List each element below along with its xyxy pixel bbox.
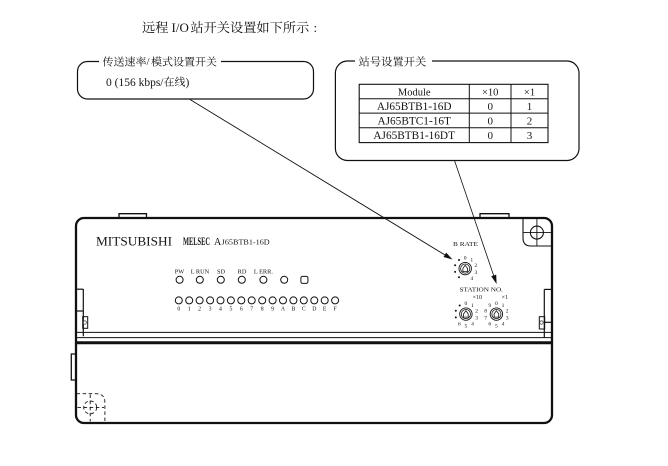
svg-text:RD: RD (238, 269, 247, 276)
svg-text:5: 5 (229, 307, 232, 313)
svg-text:0: 0 (465, 301, 468, 307)
svg-text:I/O: I/O (172, 20, 189, 35)
svg-text:×1: ×1 (502, 295, 508, 301)
svg-text:0: 0 (487, 101, 493, 113)
svg-text:SD: SD (217, 269, 226, 276)
svg-text:MELSEC: MELSEC (183, 236, 210, 248)
svg-text:8: 8 (484, 309, 487, 315)
svg-text:1: 1 (470, 258, 473, 264)
svg-text:4: 4 (502, 321, 505, 327)
svg-text:L ERR.: L ERR. (254, 269, 273, 276)
svg-text:MITSUBISHI: MITSUBISHI (96, 234, 172, 249)
svg-text:3: 3 (209, 307, 212, 313)
svg-text:3: 3 (475, 270, 478, 276)
svg-text:7: 7 (250, 307, 253, 313)
svg-text:STATION NO.: STATION NO. (460, 287, 504, 294)
svg-text:2: 2 (527, 116, 533, 128)
svg-text:6: 6 (240, 307, 243, 313)
svg-text:4: 4 (219, 307, 222, 313)
svg-text:Module: Module (398, 88, 431, 99)
svg-text:0 (156 kbps/: 0 (156 kbps/ (106, 77, 164, 89)
svg-text:1: 1 (502, 303, 505, 309)
svg-text:2: 2 (475, 263, 478, 269)
svg-text:0: 0 (464, 255, 467, 261)
svg-text:×1: ×1 (524, 88, 535, 99)
svg-text:J65BTB1-16D: J65BTB1-16D (222, 238, 270, 246)
svg-text:D: D (312, 307, 316, 313)
svg-text:B: B (291, 307, 295, 313)
svg-text:AJ65BTB1-16D: AJ65BTB1-16D (377, 101, 452, 113)
svg-text:3: 3 (527, 130, 533, 142)
svg-text:2: 2 (506, 309, 509, 315)
svg-text:3: 3 (506, 316, 509, 322)
svg-text:E: E (323, 307, 327, 313)
svg-text:6: 6 (458, 321, 461, 327)
svg-text:0: 0 (177, 307, 180, 313)
svg-text:1: 1 (471, 303, 474, 309)
svg-text:PW: PW (175, 269, 185, 276)
svg-text:4: 4 (471, 321, 474, 327)
svg-text:2: 2 (198, 307, 201, 313)
svg-text:4: 4 (470, 276, 473, 282)
svg-text:0: 0 (487, 116, 493, 128)
svg-text:×10: ×10 (482, 88, 498, 99)
svg-text:5: 5 (465, 324, 468, 330)
svg-text:3: 3 (475, 316, 478, 322)
svg-text:0: 0 (495, 301, 498, 307)
svg-text:AJ65BTB1-16DT: AJ65BTB1-16DT (373, 130, 455, 142)
svg-text:6: 6 (488, 321, 491, 327)
svg-text:2: 2 (475, 309, 478, 315)
svg-text::: : (314, 20, 318, 35)
svg-text:B RATE: B RATE (453, 241, 478, 248)
svg-text:9: 9 (271, 307, 274, 313)
svg-text:0: 0 (487, 130, 493, 142)
svg-text:L RUN: L RUN (191, 269, 210, 276)
svg-text:AJ65BTC1-16T: AJ65BTC1-16T (377, 116, 451, 128)
svg-text:7: 7 (484, 316, 487, 322)
svg-text:C: C (302, 307, 306, 313)
svg-text:): ) (186, 77, 190, 89)
svg-text:×10: ×10 (473, 295, 482, 301)
svg-text:5: 5 (495, 324, 498, 330)
svg-text:9: 9 (488, 303, 491, 309)
svg-text:8: 8 (261, 307, 264, 313)
svg-text:1: 1 (188, 307, 191, 313)
svg-text:1: 1 (527, 101, 533, 113)
